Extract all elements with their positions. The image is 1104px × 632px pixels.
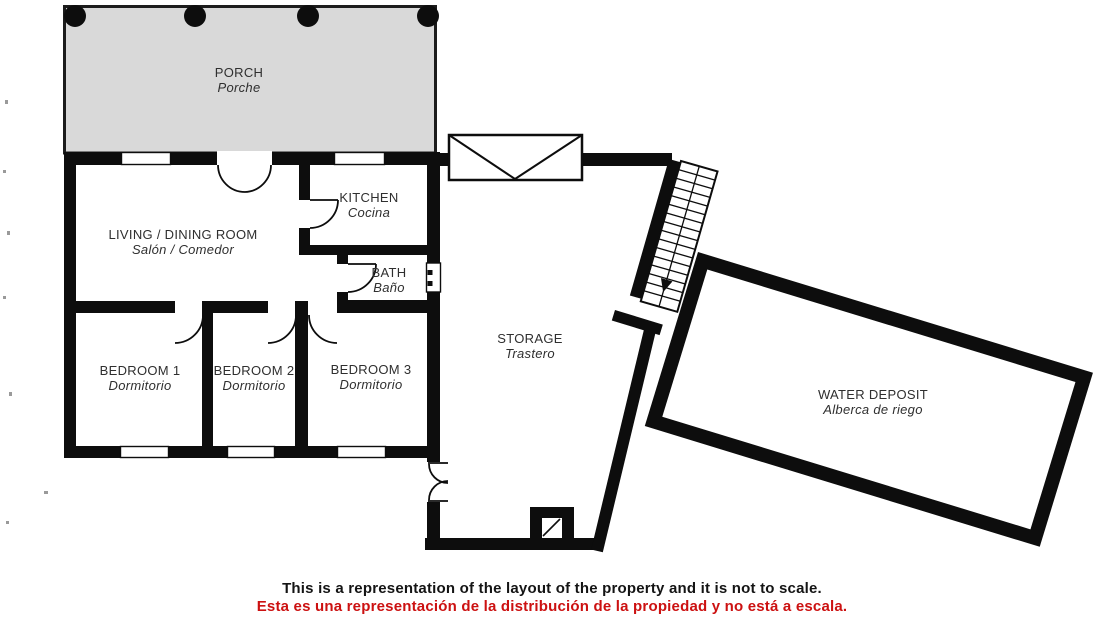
storage-door-opening [426, 462, 441, 502]
window-kitchen [335, 153, 385, 165]
front-door-right-arc [245, 165, 271, 192]
room-label-living-dining: LIVING / DINING ROOM Salón / Comedor [108, 227, 257, 257]
room-name: WATER DEPOSIT [818, 387, 928, 402]
wall-bedroom1-2 [202, 301, 213, 446]
room-label-bedroom3: BEDROOM 3 Dormitorio [331, 362, 412, 392]
room-name: BEDROOM 3 [331, 362, 412, 377]
room-name-es: Porche [215, 80, 263, 95]
room-label-bath: BATH Baño [372, 265, 407, 295]
wall-bedroom2-3 [295, 301, 308, 446]
storage-wall-slanted [591, 321, 658, 552]
wall-kitchen-bottom [299, 245, 440, 255]
bedroom3-door-arc [309, 315, 337, 343]
window-bedroom1 [121, 447, 169, 458]
wall-bath-left [337, 255, 348, 264]
room-name-es: Baño [372, 280, 407, 295]
bedroom1-door-arc [175, 315, 203, 343]
porch-column-icon [297, 5, 319, 27]
room-label-bedroom1: BEDROOM 1 Dormitorio [100, 363, 181, 393]
window-bedroom3 [338, 447, 386, 458]
storage-wall-bottom [425, 538, 602, 550]
scan-artifacts [3, 100, 48, 524]
room-name-es: Dormitorio [214, 378, 295, 393]
disclaimer-spanish: Esta es una representación de la distrib… [0, 598, 1104, 616]
room-name-es: Alberca de riego [818, 402, 928, 417]
front-door-opening [217, 151, 272, 166]
room-name: BEDROOM 1 [100, 363, 181, 378]
disclaimer-english: This is a representation of the layout o… [0, 580, 1104, 598]
room-name: LIVING / DINING ROOM [108, 227, 257, 242]
room-label-storage: STORAGE Trastero [497, 331, 562, 361]
room-name-es: Cocina [339, 205, 398, 220]
floor-plan-drawing [0, 0, 1104, 632]
room-name: PORCH [215, 65, 263, 80]
room-label-kitchen: KITCHEN Cocina [339, 190, 398, 220]
room-name: BATH [372, 265, 407, 280]
room-name-es: Salón / Comedor [108, 242, 257, 257]
window-living [122, 153, 171, 165]
floor-plan-page: PORCH Porche LIVING / DINING ROOM Salón … [0, 0, 1104, 632]
manhole-symbol [530, 507, 574, 540]
bedroom2-door-arc [268, 315, 296, 343]
window-bath [427, 263, 441, 292]
disclaimer: This is a representation of the layout o… [0, 580, 1104, 615]
window-bedroom2 [228, 447, 275, 458]
wall-bath-left [337, 292, 348, 313]
gate-symbol [449, 135, 582, 180]
room-label-bedroom2: BEDROOM 2 Dormitorio [214, 363, 295, 393]
wall-hall [337, 300, 440, 313]
room-label-porch: PORCH Porche [215, 65, 263, 95]
kitchen-door-arc [310, 200, 338, 228]
porch-column-icon [184, 5, 206, 27]
front-door-left-arc [218, 165, 245, 192]
wall-hall [64, 301, 175, 313]
room-name-es: Dormitorio [331, 377, 412, 392]
room-name: STORAGE [497, 331, 562, 346]
room-name-es: Dormitorio [100, 378, 181, 393]
room-name: BEDROOM 2 [214, 363, 295, 378]
room-label-water-deposit: WATER DEPOSIT Alberca de riego [818, 387, 928, 417]
landing-wall [612, 310, 663, 335]
room-name: KITCHEN [339, 190, 398, 205]
window-bath-tick [428, 270, 433, 275]
room-name-es: Trastero [497, 346, 562, 361]
porch-column-icon [417, 5, 439, 27]
wall-kitchen-left [299, 152, 310, 200]
porch-column-icon [64, 5, 86, 27]
window-bath-tick [428, 281, 433, 286]
